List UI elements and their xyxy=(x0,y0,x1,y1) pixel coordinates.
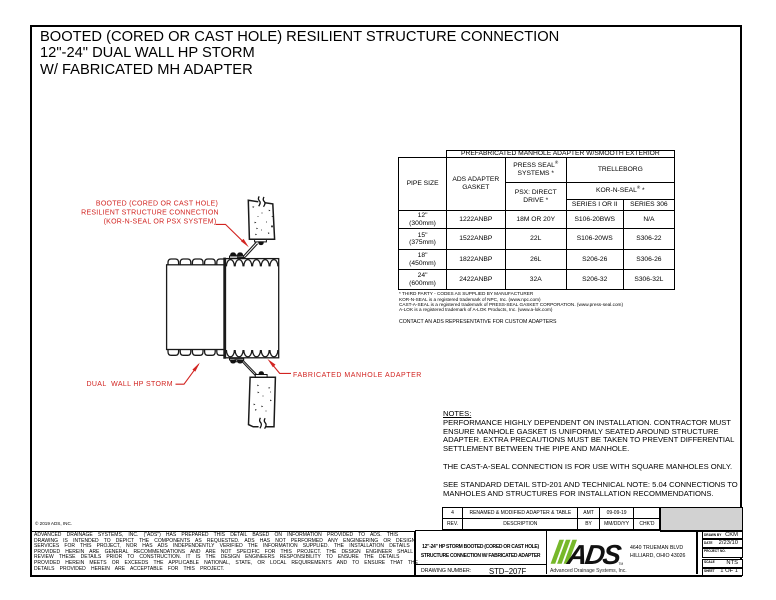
svg-text:RESILIENT STRUCTURE CONNECTION: RESILIENT STRUCTURE CONNECTION xyxy=(81,209,219,216)
svg-text:FABRICATED MANHOLE ADAPTER: FABRICATED MANHOLE ADAPTER xyxy=(293,372,422,379)
svg-text:ADS: ADS xyxy=(565,538,625,569)
svg-text:DUAL WALL HP STORM: DUAL WALL HP STORM xyxy=(87,381,173,388)
svg-text:BOOTED (CORED OR CAST HOLE): BOOTED (CORED OR CAST HOLE) xyxy=(96,200,218,207)
svg-text:(KOR-N-SEAL OR PSX SYSTEM): (KOR-N-SEAL OR PSX SYSTEM) xyxy=(104,218,217,225)
svg-text:TM: TM xyxy=(619,562,624,566)
